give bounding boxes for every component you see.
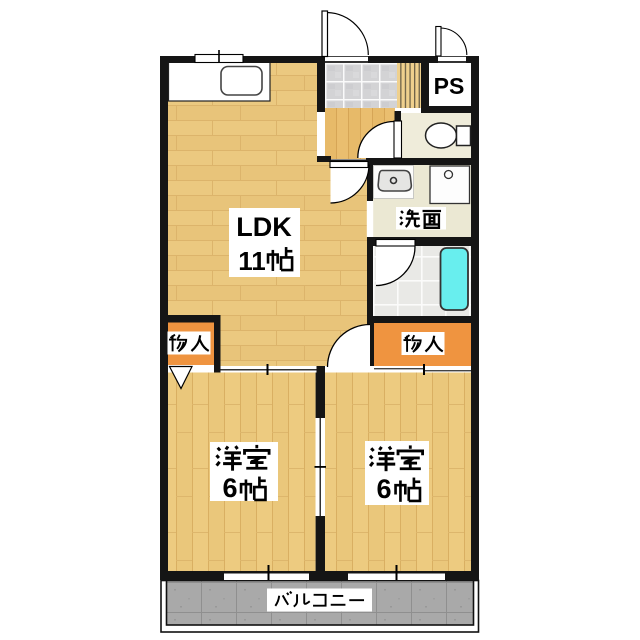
svg-text:6: 6 (222, 473, 237, 503)
svg-text:PS: PS (434, 73, 465, 99)
svg-text:LDK: LDK (236, 212, 292, 242)
svg-text:6: 6 (376, 474, 391, 504)
svg-text:11: 11 (238, 246, 266, 276)
